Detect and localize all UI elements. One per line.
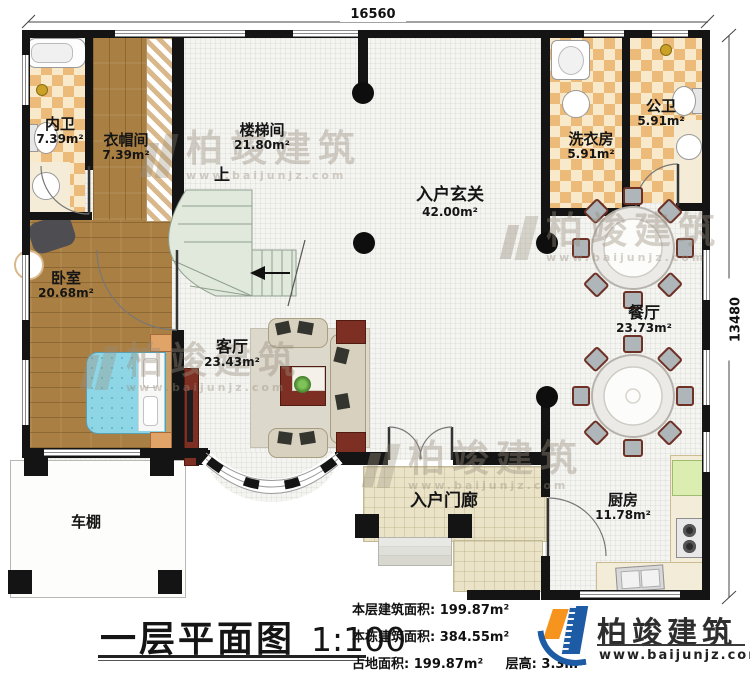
company-url: www.baijunjz.com	[599, 648, 750, 663]
company-logo-icon	[540, 606, 592, 668]
logo-rule	[597, 644, 745, 646]
dimension-right: 13480	[729, 279, 744, 361]
stair-up-label: 上	[214, 166, 230, 184]
room-label-public-bath: 公卫 5.91m²	[637, 98, 684, 129]
stairs	[169, 190, 296, 296]
room-label-living: 客厅 23.43m²	[204, 338, 260, 370]
room-label-bedroom: 卧室 20.68m²	[38, 270, 94, 301]
room-label-dining: 餐厅 23.73m²	[616, 304, 672, 336]
logo-swoosh	[537, 625, 586, 671]
bay-window-band	[206, 458, 338, 486]
room-label-carport: 车棚	[71, 514, 101, 531]
room-label-stairwell: 楼梯间 21.80m²	[234, 122, 290, 153]
title-underline	[98, 655, 366, 658]
room-label-cloakroom: 衣帽间 7.39m²	[102, 132, 149, 163]
room-label-porch: 入户门廊	[410, 492, 478, 512]
doors	[41, 164, 678, 556]
room-label-master-bath: 内卫 7.39m²	[36, 116, 83, 147]
dimension-top: 16560	[340, 7, 406, 22]
room-label-foyer: 入户玄关 42.00m²	[416, 186, 484, 219]
drawing-title-text: 一层平面图	[100, 619, 295, 660]
dining-table	[573, 188, 693, 308]
floor-plan-canvas: 柏竣建筑 www.baijunjz.com 柏竣建筑 www.baijunjz.…	[0, 0, 750, 673]
dining-table	[573, 336, 693, 456]
room-label-laundry: 洗衣房 5.91m²	[567, 131, 614, 162]
room-label-kitchen: 厨房 11.78m²	[595, 492, 651, 523]
title-underline-thin	[98, 660, 366, 661]
